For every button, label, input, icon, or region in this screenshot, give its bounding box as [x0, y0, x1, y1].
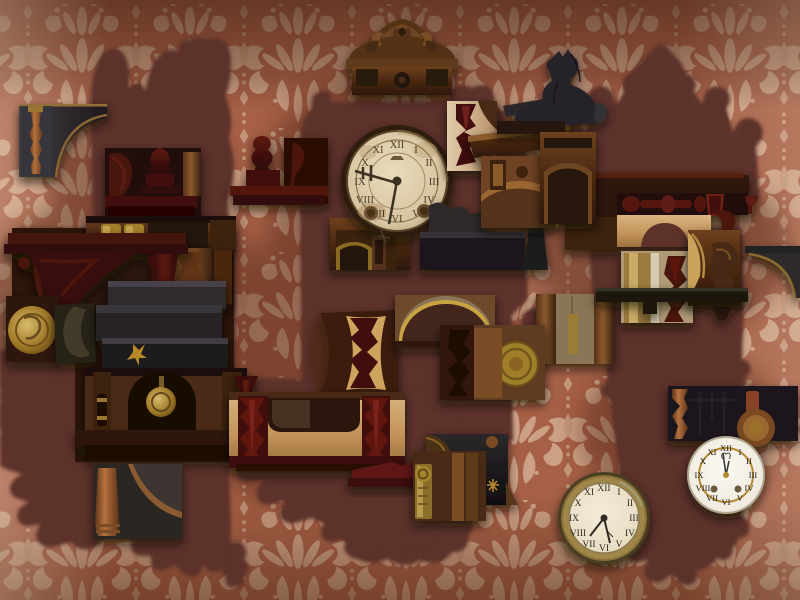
svg-text:VII: VII [706, 493, 718, 503]
svg-text:VI: VI [391, 214, 403, 225]
svg-text:XI: XI [372, 145, 384, 156]
svg-text:I: I [739, 447, 742, 457]
svg-text:I: I [617, 488, 620, 498]
svg-text:VIII: VIII [570, 529, 586, 539]
svg-text:X: X [575, 499, 582, 509]
svg-text:I: I [414, 145, 418, 156]
svg-text:XI: XI [584, 488, 594, 498]
svg-text:VIII: VIII [356, 195, 375, 206]
svg-text:III: III [629, 514, 639, 524]
svg-text:IV: IV [625, 529, 635, 539]
svg-text:VI: VI [599, 544, 609, 554]
svg-text:VII: VII [582, 540, 595, 550]
svg-text:V: V [616, 540, 623, 550]
svg-text:II: II [746, 456, 752, 466]
svg-text:XII: XII [720, 443, 732, 453]
svg-text:IX: IX [695, 470, 704, 480]
svg-text:II: II [627, 499, 633, 509]
svg-text:XII: XII [390, 140, 405, 151]
svg-text:III: III [749, 470, 758, 480]
svg-text:IV: IV [745, 483, 755, 493]
svg-text:VIII: VIII [696, 483, 711, 493]
svg-text:X: X [700, 456, 706, 466]
svg-text:IX: IX [569, 514, 579, 524]
svg-text:V: V [737, 493, 744, 503]
svg-text:VI: VI [722, 497, 731, 507]
svg-text:XII: XII [597, 484, 610, 494]
svg-text:XI: XI [708, 447, 717, 457]
svg-text:III: III [429, 177, 440, 188]
svg-text:II: II [426, 158, 433, 169]
